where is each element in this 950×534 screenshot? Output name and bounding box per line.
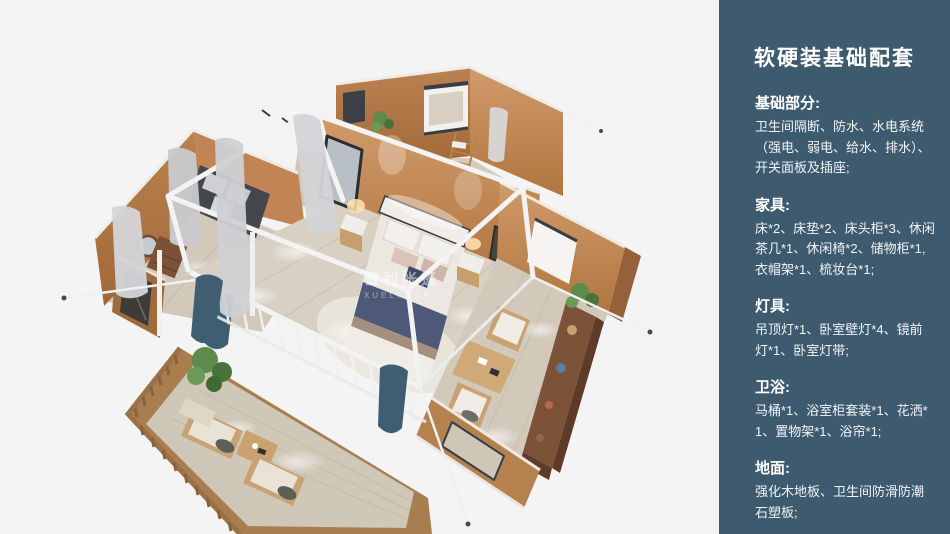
watermark: 雪利帐篷 XUELI TENT (364, 270, 440, 300)
bathroom-window (424, 83, 468, 134)
section-lighting: 灯具: 吊顶灯*1、卧室壁灯*4、镜前灯*1、卧室灯带; (755, 295, 935, 361)
panel-title: 软硬装基础配套 (719, 42, 950, 72)
section-body: 强化木地板、卫生间防滑防潮石塑板; (755, 482, 935, 523)
section-heading: 家具: (755, 194, 935, 215)
bathroom-small-window (343, 90, 365, 125)
section-body: 卫生间隔断、防水、水电系统（强电、弱电、给水、排水）、开关面板及插座; (755, 117, 935, 179)
section-body: 床*2、床垫*2、床头柜*3、休闲茶几*1、休闲椅*2、储物柜*1,衣帽架*1、… (755, 219, 935, 281)
section-heading: 卫浴: (755, 376, 935, 397)
section-heading: 基础部分: (755, 92, 935, 113)
section-body: 吊顶灯*1、卧室壁灯*4、镜前灯*1、卧室灯带; (755, 320, 935, 361)
section-basics: 基础部分: 卫生间隔断、防水、水电系统（强电、弱电、给水、排水）、开关面板及插座… (755, 92, 935, 179)
floorplan-render: 雪利帐篷 XUELI TENT (0, 0, 719, 534)
svg-text:XUELI TENT: XUELI TENT (364, 291, 440, 300)
svg-text:雪利帐篷: 雪利帐篷 (364, 270, 440, 288)
section-body: 马桶*1、浴室柜套装*1、花洒*1、置物架*1、浴帘*1; (755, 401, 935, 442)
section-flooring: 地面: 强化木地板、卫生间防滑防潮石塑板; (755, 457, 935, 523)
info-panel: 软硬装基础配套 基础部分: 卫生间隔断、防水、水电系统（强电、弱电、给水、排水）… (719, 0, 950, 534)
section-bathroom: 卫浴: 马桶*1、浴室柜套装*1、花洒*1、置物架*1、浴帘*1; (755, 376, 935, 442)
section-furniture: 家具: 床*2、床垫*2、床头柜*3、休闲茶几*1、休闲椅*2、储物柜*1,衣帽… (755, 194, 935, 281)
section-heading: 地面: (755, 457, 935, 478)
section-heading: 灯具: (755, 295, 935, 316)
